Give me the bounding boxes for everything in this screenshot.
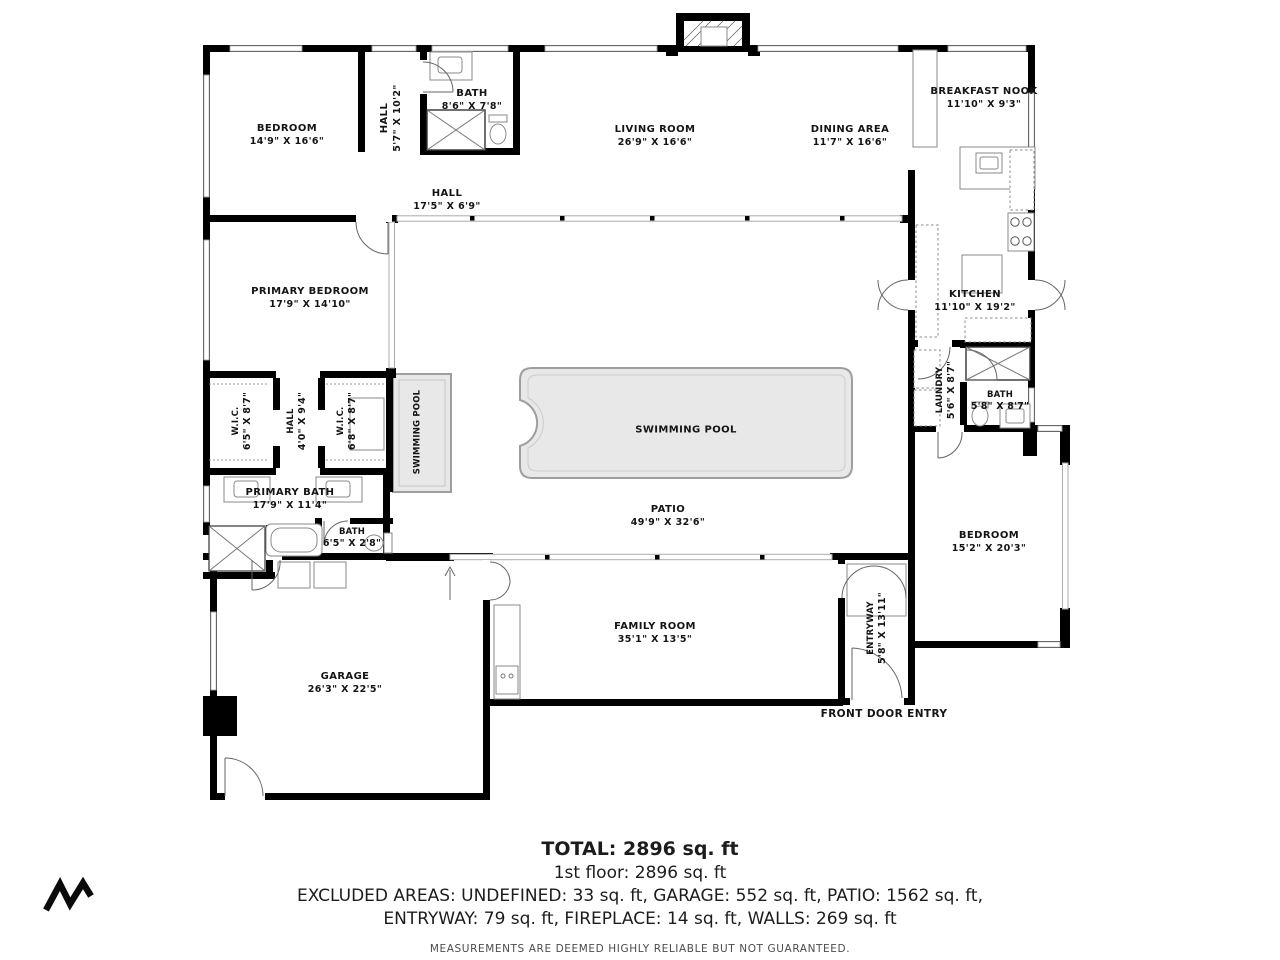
room-label-hall-wic: HALL 4'0" X 9'4": [286, 392, 310, 450]
excluded-areas-line2: ENTRYWAY: 79 sq. ft, FIREPLACE: 14 sq. f…: [0, 909, 1280, 929]
room-label-wic-left: W.I.C. 6'5" X 8'7": [231, 392, 255, 450]
family-room-fixture: [496, 666, 518, 694]
total-area: TOTAL: 2896 sq. ft: [0, 838, 1280, 860]
room-label-laundry: LAUNDRY 5'6" X 8'7": [935, 361, 959, 419]
room-label-bath-small: BATH 6'5" X 2'8": [323, 527, 381, 551]
toilet-tank: [489, 115, 507, 122]
room-label-bedroom-right: BEDROOM 15'2" X 20'3": [952, 529, 1027, 555]
pantry-column: [916, 225, 938, 337]
room-label-dining-area: DINING AREA 11'7" X 16'6": [811, 123, 890, 149]
garage-entry-arrow: [445, 567, 455, 600]
floor-plan-page: BEDROOM 14'9" X 16'6" HALL 5'7" X 10'2" …: [0, 0, 1280, 960]
bath-right-shower: [966, 347, 1030, 380]
fireplace: [684, 21, 742, 46]
room-label-hall-main: HALL 17'5" X 6'9": [413, 187, 481, 213]
primary-shower: [209, 526, 265, 571]
room-label-garage: GARAGE 26'3" X 22'5": [308, 670, 383, 696]
lower-counter: [965, 318, 1031, 342]
room-label-kitchen: KITCHEN 11'10" X 19'2": [934, 288, 1016, 314]
room-label-wic-right: W.I.C. 6'8" X 8'7": [336, 392, 360, 450]
room-label-bedroom-top-left: BEDROOM 14'9" X 16'6": [250, 122, 325, 148]
label-swimming-pool-small: SWIMMING POOL: [412, 390, 423, 475]
toilet-bowl: [490, 124, 506, 144]
fridge: [1010, 150, 1034, 210]
room-label-living-room: LIVING ROOM 26'9" X 16'6": [615, 123, 696, 149]
room-label-family-room: FAMILY ROOM 35'1" X 13'5": [614, 620, 696, 646]
label-swimming-pool-main: SWIMMING POOL: [635, 423, 737, 437]
room-label-breakfast-nook: BREAKFAST NOOK 11'10" X 9'3": [930, 85, 1037, 111]
cabinet: [278, 562, 310, 588]
room-label-bath-upper: BATH 8'6" X 7'8": [442, 87, 503, 113]
bath-upper-shower: [427, 110, 485, 150]
toilet-tank: [384, 533, 392, 553]
room-label-entryway: ENTRYWAY 5'8" X 13'11": [866, 592, 890, 664]
excluded-areas-line1: EXCLUDED AREAS: UNDEFINED: 33 sq. ft, GA…: [0, 886, 1280, 906]
first-floor-area: 1st floor: 2896 sq. ft: [0, 863, 1280, 883]
label-front-door-entry: FRONT DOOR ENTRY: [821, 707, 948, 721]
room-label-primary-bath: PRIMARY BATH 17'9" X 11'4": [246, 486, 335, 512]
zigzag-logo: [38, 872, 100, 918]
room-label-hall-upper: HALL 5'7" X 10'2": [378, 84, 404, 152]
disclaimer: MEASUREMENTS ARE DEEMED HIGHLY RELIABLE …: [0, 943, 1280, 955]
room-label-patio: PATIO 49'9" X 32'6": [631, 503, 706, 529]
cabinet: [314, 562, 346, 588]
room-label-bath-right: BATH 5'8" X 8'7": [971, 390, 1029, 414]
area-summary: TOTAL: 2896 sq. ft 1st floor: 2896 sq. f…: [0, 838, 1280, 955]
swimming-pool-shapes: [393, 368, 852, 492]
room-label-primary-bedroom: PRIMARY BEDROOM 17'9" X 14'10": [251, 285, 369, 311]
